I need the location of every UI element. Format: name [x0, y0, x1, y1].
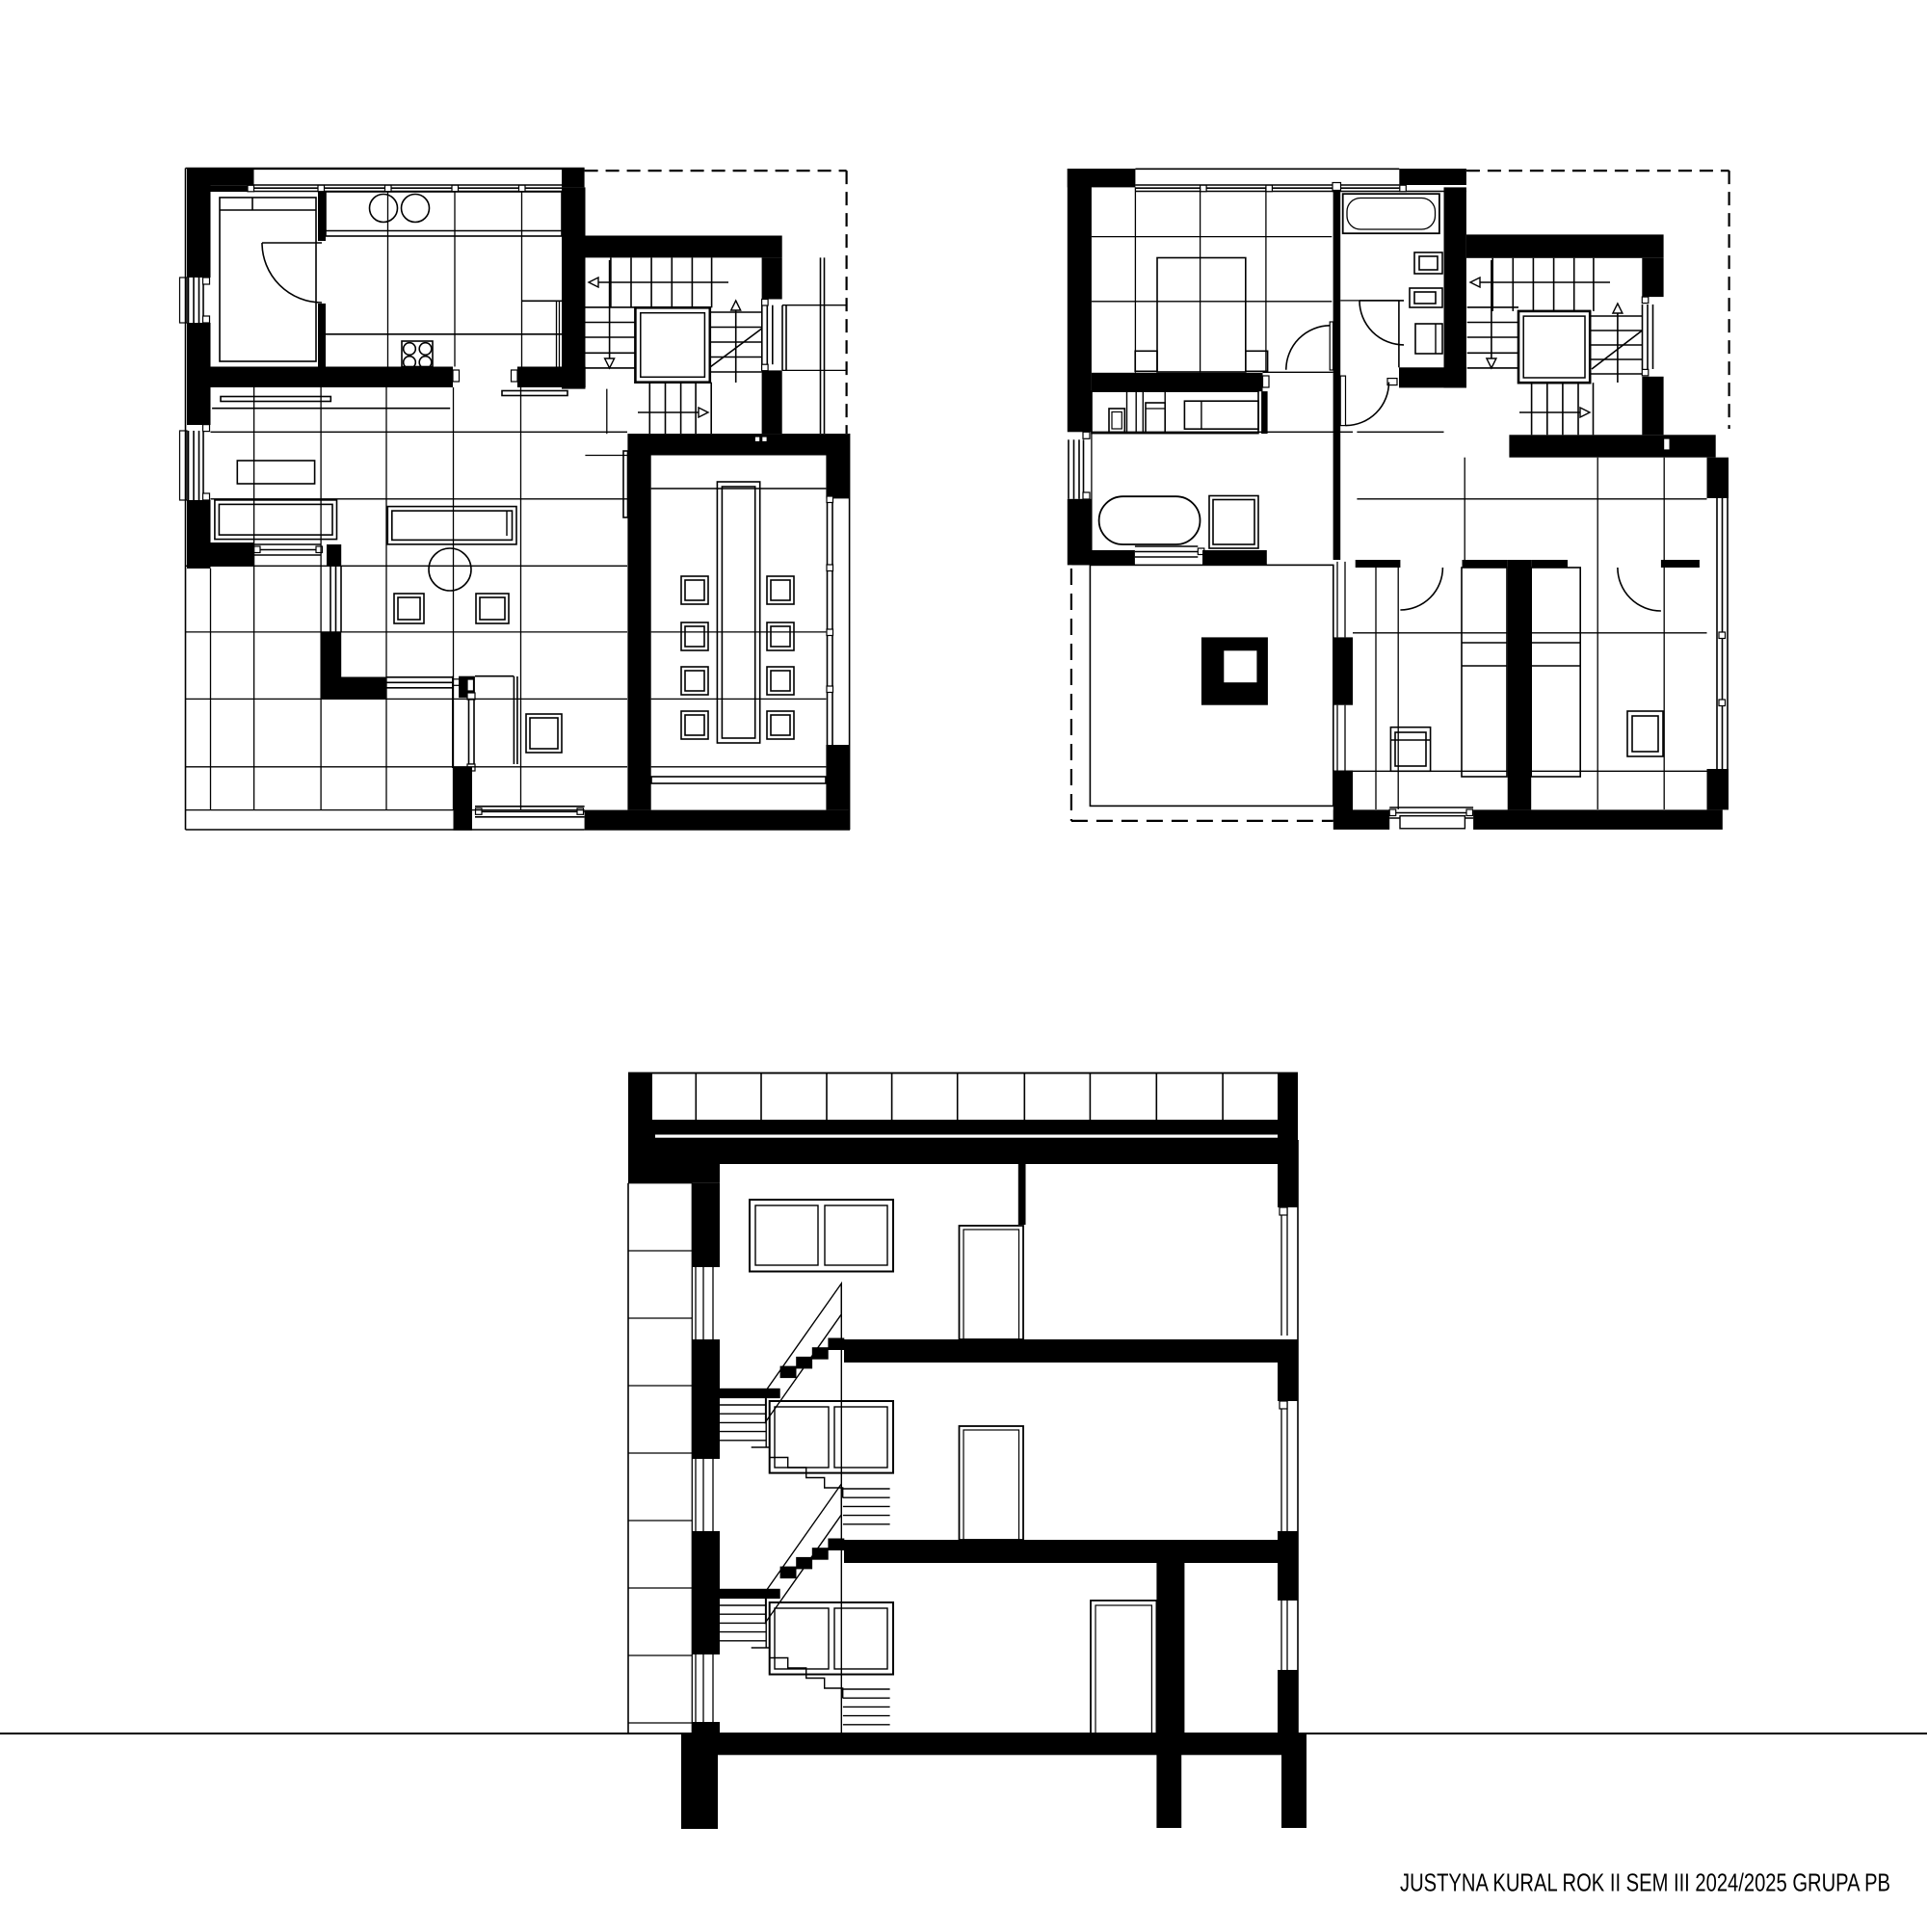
svg-text:JUSTYNA KURAL ROK II SEM III 2: JUSTYNA KURAL ROK II SEM III 2024/2025 G… [1400, 1870, 1890, 1897]
